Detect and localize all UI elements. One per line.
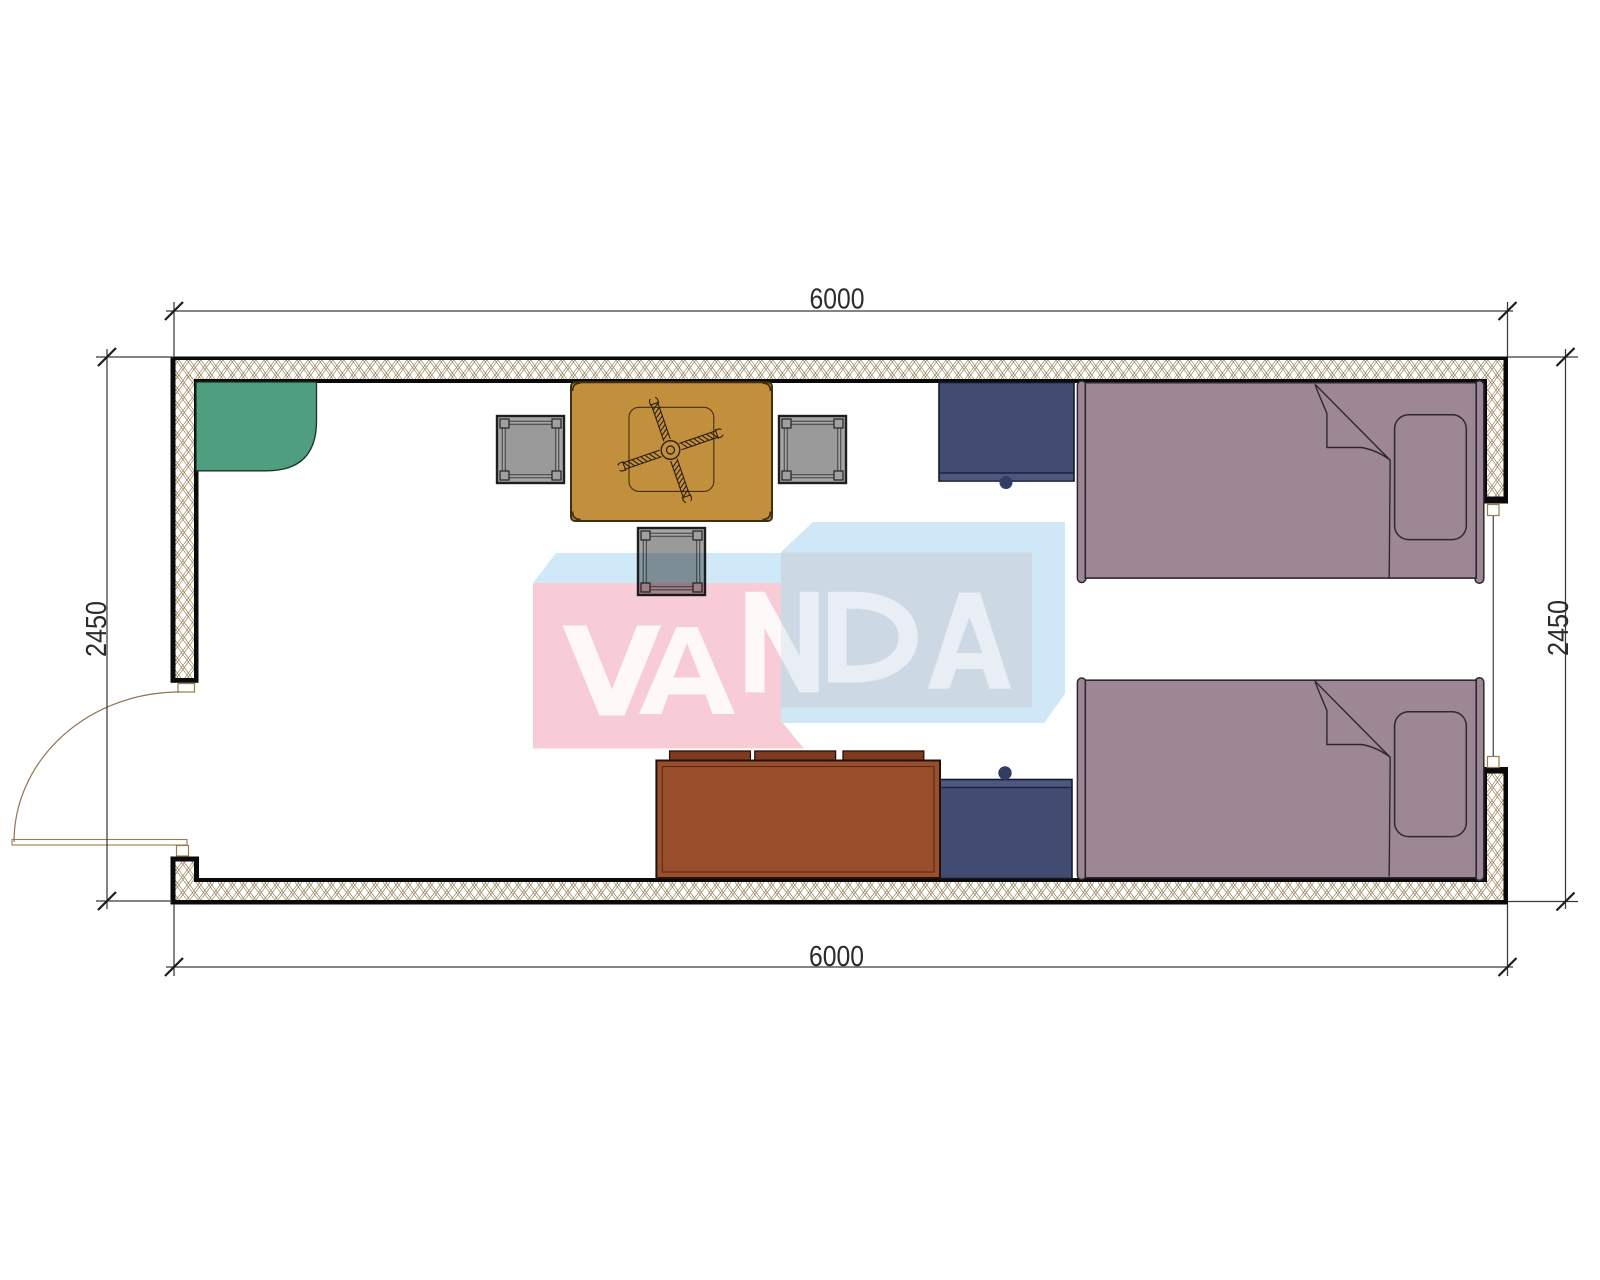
svg-text:2450: 2450 (81, 601, 113, 657)
svg-text:6000: 6000 (809, 941, 864, 973)
svg-text:2450: 2450 (1543, 600, 1575, 656)
svg-text:6000: 6000 (810, 283, 865, 315)
